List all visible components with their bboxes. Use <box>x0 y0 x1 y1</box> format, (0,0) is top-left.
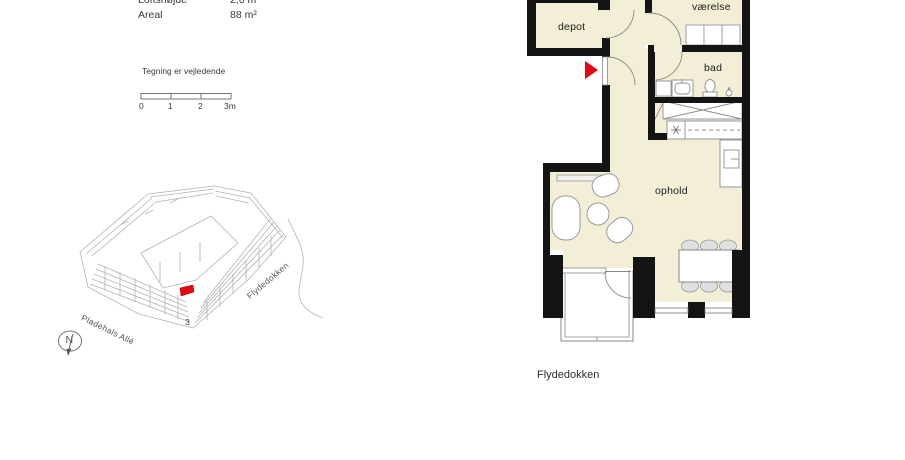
building-number: 3 <box>185 317 190 327</box>
sink-basin <box>675 83 690 94</box>
disclaimer-text: Tegning er vejledende <box>142 66 225 76</box>
room-label-vaerelse: værelse <box>692 1 731 13</box>
room-label-depot: depot <box>558 21 585 33</box>
toilet-bowl <box>705 80 715 93</box>
round-table <box>587 203 609 225</box>
highlighted-unit-marker <box>180 285 194 296</box>
balcony-window <box>562 268 606 273</box>
dining-table <box>679 250 739 282</box>
shower-drain-icon <box>726 90 732 96</box>
plan-graphics <box>0 0 905 460</box>
hall-closet <box>655 101 742 119</box>
ceiling-height-value: 2,6 m <box>230 0 256 8</box>
scale-tick-1: 1 <box>168 101 173 111</box>
entry-door-leaf <box>603 57 608 85</box>
scale-tick-2: 2 <box>198 101 203 111</box>
balcony <box>561 268 633 341</box>
armchair-large <box>552 196 580 240</box>
meta-row-ceiling: Loftshøjde 2,6 m <box>138 0 257 8</box>
meta-row-area: Areal 88 m² <box>138 8 257 23</box>
vaerelse-wardrobe <box>686 25 740 45</box>
street-label-flydedokken-plan: Flydedokken <box>537 369 599 381</box>
ceiling-height-label: Loftshøjde <box>138 0 230 8</box>
area-label: Areal <box>138 8 230 23</box>
scale-bar <box>141 94 231 100</box>
site-plan-building <box>80 186 286 328</box>
toilet-tank <box>703 92 717 97</box>
room-label-ophold: ophold <box>655 185 688 197</box>
entry-arrow-icon <box>585 61 598 79</box>
area-value: 88 m² <box>230 8 257 23</box>
scale-tick-0: 0 <box>139 101 144 111</box>
meta-info: Loftshøjde 2,6 m Areal 88 m² <box>138 0 257 22</box>
north-label: N <box>66 334 74 346</box>
site-road-curve <box>288 219 323 318</box>
scale-tick-3: 3m <box>224 101 236 111</box>
washer <box>656 81 671 96</box>
room-label-bad: bad <box>704 62 722 74</box>
floorplan-page: Loftshøjde 2,6 m Areal 88 m² Tegning er … <box>0 0 905 460</box>
